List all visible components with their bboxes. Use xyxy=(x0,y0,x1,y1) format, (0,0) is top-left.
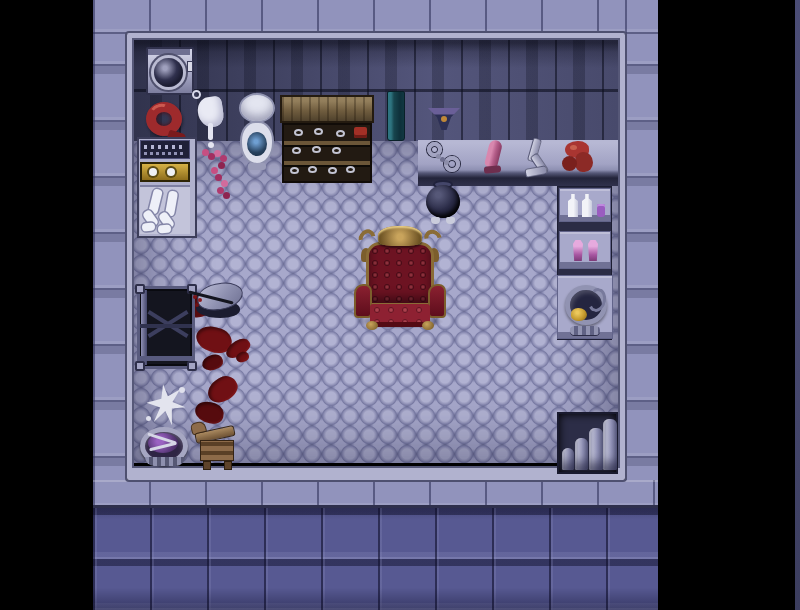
bed-bar xyxy=(140,356,192,361)
panel-face xyxy=(387,91,405,141)
washer-knob xyxy=(187,61,193,72)
bottle xyxy=(568,194,578,217)
throne-back xyxy=(366,242,434,306)
horse-leg xyxy=(224,461,232,470)
shelf-slat xyxy=(284,141,370,145)
throne[interactable] xyxy=(352,226,448,331)
vanity-gold-panel xyxy=(140,162,190,182)
tall-panel[interactable] xyxy=(387,91,405,141)
splash-ring xyxy=(192,90,201,99)
washer-panel xyxy=(148,49,190,55)
bottom-wall xyxy=(93,508,658,610)
sign-text-line xyxy=(144,152,186,155)
outer-wall-right xyxy=(625,0,658,480)
rope-lump xyxy=(562,156,577,171)
rope-lump xyxy=(575,152,593,172)
rope-highlight xyxy=(570,145,577,150)
ring-item xyxy=(290,167,299,174)
red-rope-bundle[interactable] xyxy=(560,138,596,177)
bed-post xyxy=(187,361,197,371)
bucket-shelf[interactable] xyxy=(557,275,613,339)
toilet-lid xyxy=(239,93,275,123)
bed-post xyxy=(135,284,145,294)
stair-step xyxy=(589,428,603,470)
horse-leg xyxy=(203,461,211,470)
ring-item xyxy=(294,129,303,136)
pot-foot xyxy=(446,217,455,224)
pink-toy[interactable] xyxy=(481,139,504,173)
toilet-water xyxy=(247,132,267,156)
bottles-shelf[interactable] xyxy=(559,188,611,222)
strap-piece xyxy=(524,165,547,178)
ring-item xyxy=(336,130,345,137)
vanity-sign xyxy=(140,140,190,159)
splatter-drop xyxy=(179,387,185,393)
rope-coil xyxy=(570,326,600,335)
ring-item xyxy=(346,166,355,173)
throne-foot xyxy=(422,321,434,330)
throne-foot xyxy=(366,321,378,330)
throne-crown xyxy=(378,226,422,246)
ring-item xyxy=(332,147,341,154)
throne-arm xyxy=(428,284,446,318)
outer-wall-top xyxy=(93,0,658,34)
blood-spots xyxy=(193,295,197,299)
ring-item xyxy=(328,167,337,174)
cuff-chain xyxy=(436,154,441,159)
vanity-front xyxy=(140,185,190,234)
bead-chain[interactable] xyxy=(198,147,236,199)
bottle xyxy=(582,194,592,217)
handcuffs[interactable] xyxy=(426,141,462,175)
iron-pot[interactable] xyxy=(424,180,462,225)
horse-body xyxy=(200,440,234,461)
overturned-stool[interactable] xyxy=(188,280,250,322)
shoes-shelf[interactable] xyxy=(559,231,611,269)
bottom-ledge xyxy=(93,480,658,508)
stocking-foot xyxy=(158,225,172,234)
screen-edge-sliver xyxy=(795,0,800,610)
ring-item xyxy=(308,166,317,173)
game-viewport[interactable] xyxy=(0,0,800,610)
beads xyxy=(202,149,209,156)
toilet-base xyxy=(248,163,266,170)
shoe xyxy=(588,240,598,261)
pot-foot xyxy=(431,217,440,224)
stairs[interactable] xyxy=(557,412,618,474)
panel-dial xyxy=(149,168,157,176)
toy-shaft xyxy=(484,139,503,169)
panel-dial xyxy=(167,168,175,176)
wooden-horse[interactable] xyxy=(188,417,242,470)
gold-lump xyxy=(571,308,587,321)
pot-body xyxy=(426,185,460,218)
cuff-ring xyxy=(444,156,460,172)
stair-step xyxy=(603,419,617,470)
washer-door-icon xyxy=(154,58,183,87)
ring-item xyxy=(312,146,321,153)
stair-step xyxy=(575,438,588,470)
washing-machine[interactable] xyxy=(146,47,194,95)
panties-ornament xyxy=(441,116,447,122)
display-shelf[interactable] xyxy=(280,95,374,185)
shoe xyxy=(573,240,583,261)
wash-basin[interactable] xyxy=(139,421,191,468)
metal-bed[interactable] xyxy=(137,286,195,369)
bed-post xyxy=(135,361,145,371)
shelf-slat xyxy=(284,161,370,165)
panties[interactable] xyxy=(428,104,460,132)
stair-step xyxy=(562,448,574,470)
red-box-item xyxy=(354,127,367,138)
toy-base xyxy=(484,165,502,174)
toilet[interactable] xyxy=(236,93,278,171)
splash-drip xyxy=(208,123,213,140)
shelf-top xyxy=(280,95,374,123)
throne-seat xyxy=(370,304,430,327)
outer-wall-left xyxy=(93,0,127,480)
small-purple-bottle xyxy=(597,204,605,217)
bed-bar xyxy=(140,324,192,328)
strap-harness[interactable] xyxy=(522,137,552,180)
vanity-cabinet[interactable] xyxy=(137,137,197,238)
sign-text-line xyxy=(144,145,186,149)
stocking-foot xyxy=(142,222,156,231)
basin-ribs xyxy=(145,457,185,466)
ring-item xyxy=(314,128,323,135)
ring-item xyxy=(292,147,301,154)
